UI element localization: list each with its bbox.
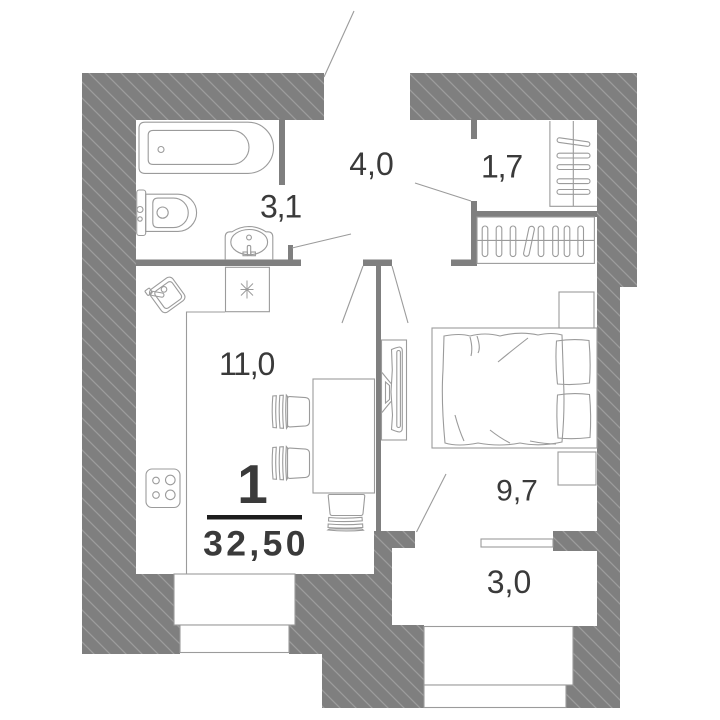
svg-text:1,7: 1,7: [481, 149, 522, 185]
svg-text:1: 1: [237, 453, 268, 515]
svg-text:32,50: 32,50: [203, 524, 309, 564]
svg-text:3,0: 3,0: [487, 564, 531, 600]
svg-text:9,7: 9,7: [496, 475, 538, 508]
svg-text:4,0: 4,0: [349, 146, 393, 182]
svg-text:11,0: 11,0: [219, 346, 275, 382]
svg-text:3,1: 3,1: [260, 189, 301, 225]
